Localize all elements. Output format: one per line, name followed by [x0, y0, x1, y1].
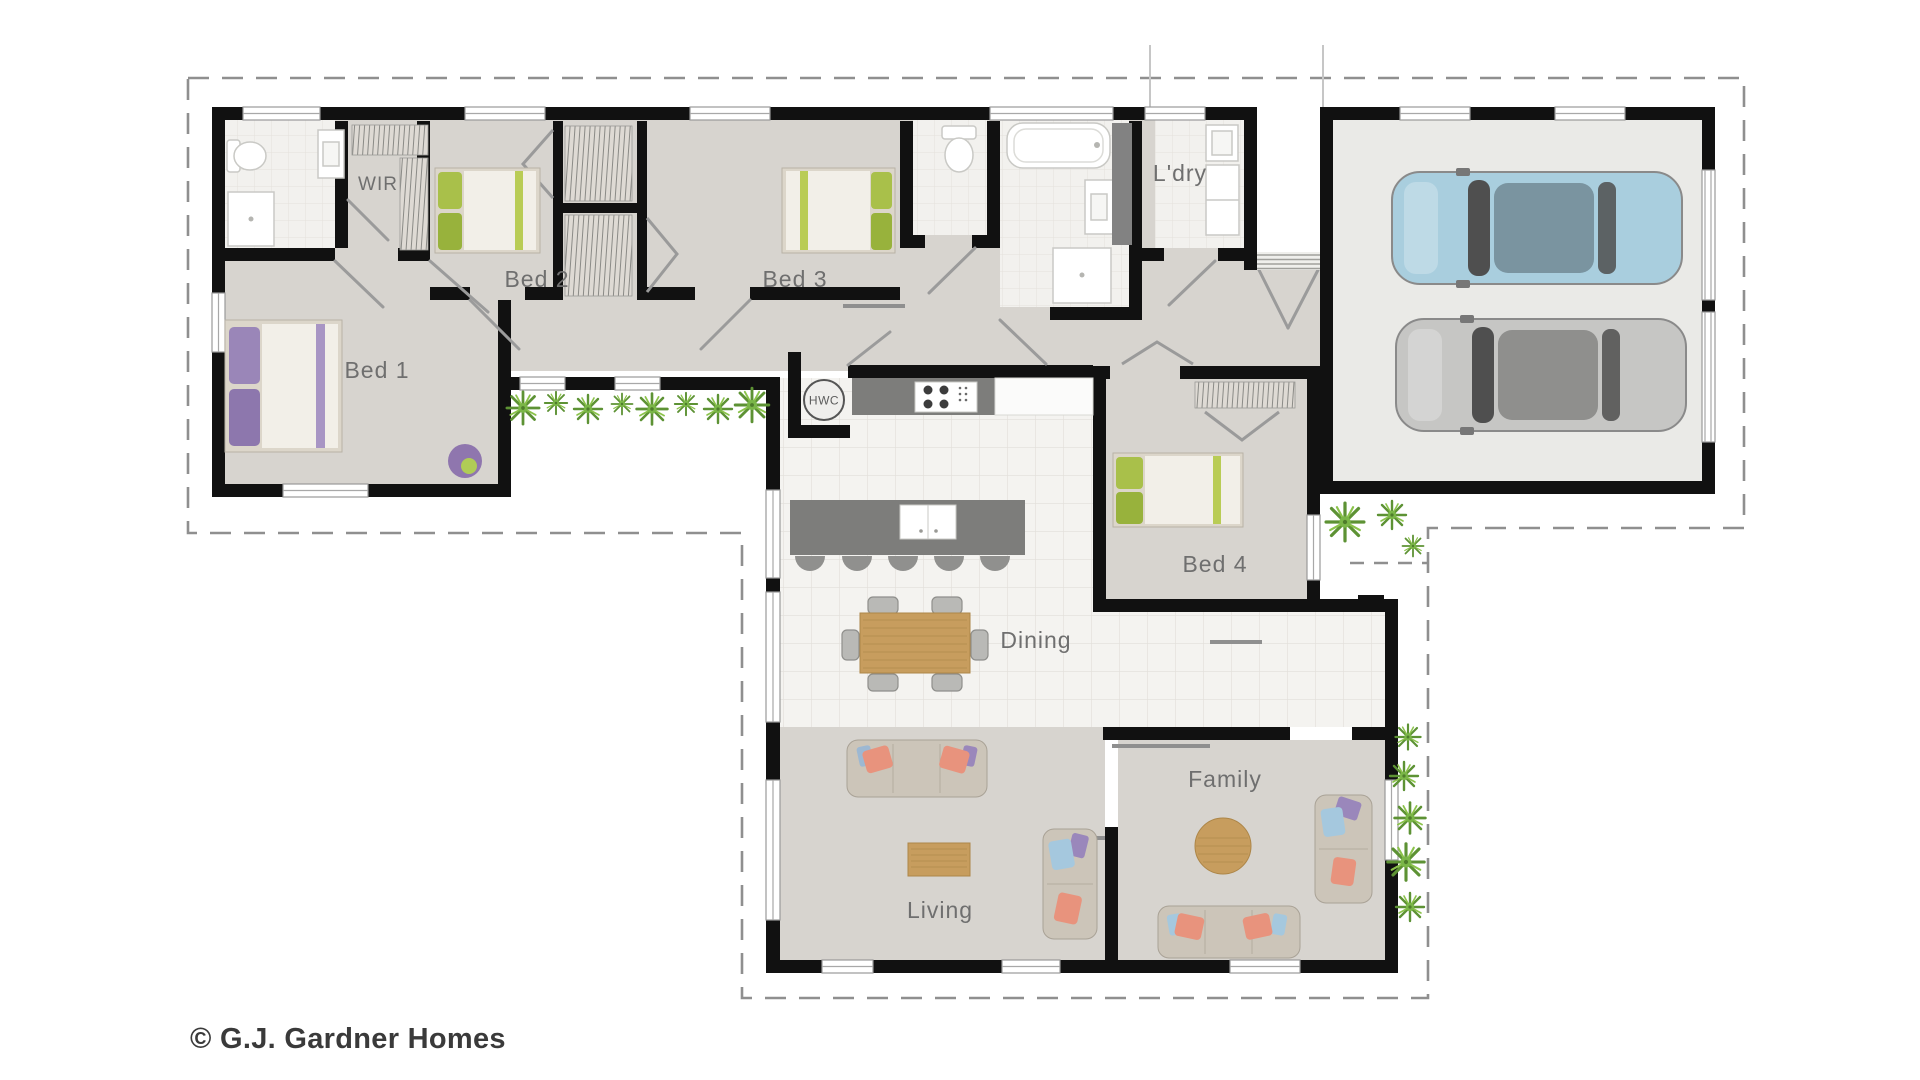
label-bed4: Bed 4	[1182, 551, 1247, 577]
label-dining: Dining	[1000, 627, 1071, 653]
wir-rail-top	[352, 125, 428, 155]
floorplan-canvas: HWC	[0, 0, 1920, 1080]
cooktop-icon	[915, 382, 977, 412]
label-bed2: Bed 2	[504, 266, 569, 292]
closet-bed2	[565, 126, 632, 201]
car-blue-icon	[1392, 168, 1682, 288]
kitchen-bench	[995, 378, 1093, 415]
entry-threshold	[1257, 252, 1320, 270]
label-bed1: Bed 1	[344, 357, 409, 383]
car-gray-icon	[1396, 315, 1686, 435]
bathtub-icon	[1007, 123, 1110, 168]
family-round-table	[1195, 818, 1251, 874]
walkway-floor	[1093, 612, 1385, 727]
hwc-label: HWC	[809, 394, 839, 408]
label-living: Living	[907, 897, 973, 923]
sofa-3se​at-family	[1158, 906, 1300, 958]
wir-rail-side	[400, 158, 428, 250]
bed2-furniture	[435, 168, 540, 253]
closet-bed4	[1195, 382, 1295, 408]
floorplan-page: HWC	[0, 0, 1920, 1080]
wc-toilet-icon	[942, 126, 976, 172]
bathroom-cabinet	[1112, 123, 1132, 245]
bed4-furniture	[1113, 453, 1243, 527]
bed3-furniture	[782, 168, 895, 253]
label-laundry: L'dry	[1153, 160, 1207, 186]
label-wir: WIR	[358, 174, 398, 195]
closet-bed3	[565, 215, 632, 296]
sofa-3seat-living	[847, 740, 987, 797]
sofa-corner-family	[1315, 795, 1372, 903]
sofa-2seat-living	[1043, 829, 1097, 939]
copyright-text: © G.J. Gardner Homes	[190, 1023, 506, 1055]
entry-walkway	[1257, 107, 1320, 252]
ensuite-toilet-icon	[227, 140, 266, 172]
label-family: Family	[1188, 766, 1262, 792]
hwc-icon: HWC	[804, 380, 844, 420]
dining-table	[860, 613, 970, 673]
label-bed3: Bed 3	[762, 266, 827, 292]
coffee-table	[908, 843, 970, 876]
island-sink-icon	[900, 505, 956, 539]
